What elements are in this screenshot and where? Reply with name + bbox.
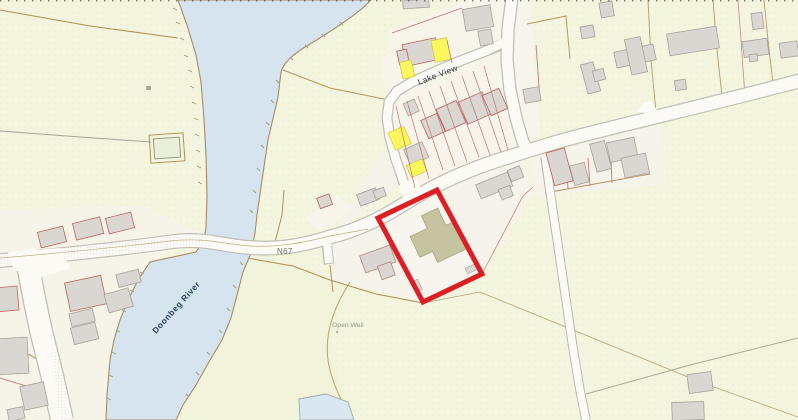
svg-text:N67: N67 (277, 247, 293, 256)
svg-text:Open Well: Open Well (332, 322, 364, 329)
